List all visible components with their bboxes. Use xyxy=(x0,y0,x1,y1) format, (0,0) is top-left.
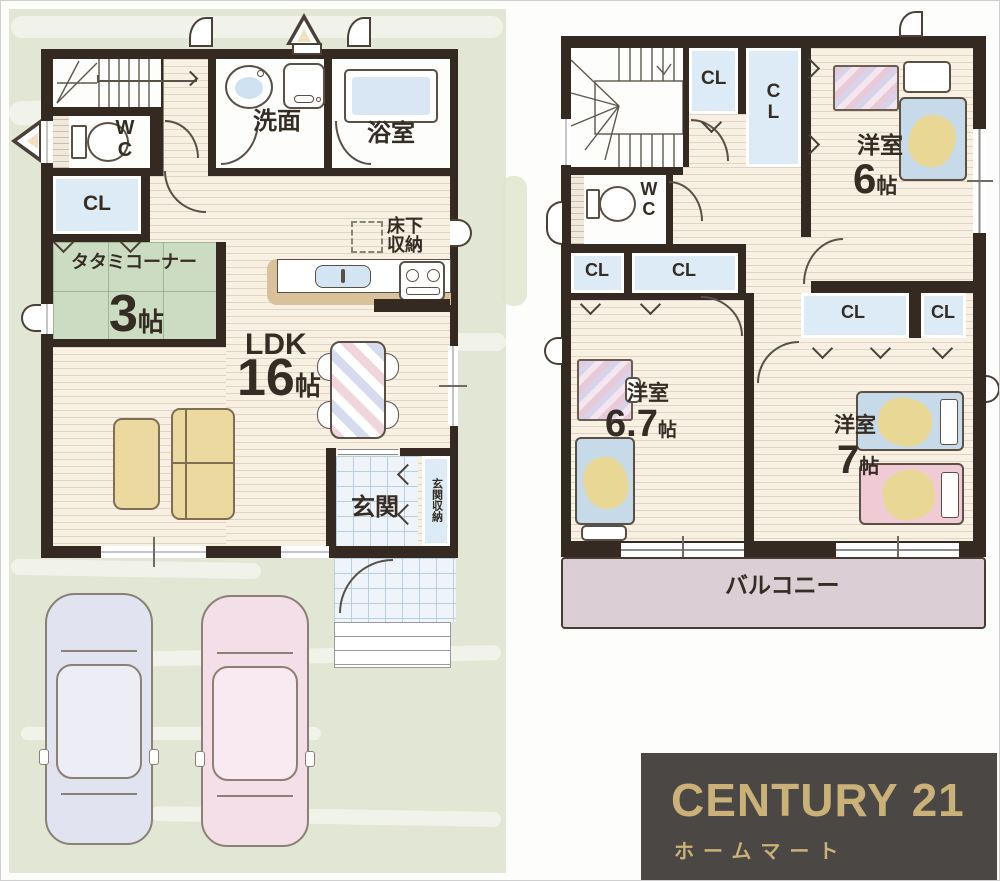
bedroom67-name-label: 洋室 xyxy=(627,383,669,405)
ldk-size-unit: 帖 xyxy=(295,371,321,401)
floorplan-page: 床下収納 xyxy=(0,0,1000,881)
stairs-treads-2f xyxy=(571,48,683,167)
bedroom7-size-number: 7 xyxy=(837,438,859,482)
wc-label-1f: WC xyxy=(114,117,135,161)
bedroom67-size-number: 6.7 xyxy=(605,403,658,445)
bath-label: 浴室 xyxy=(367,121,415,146)
bedroom7-size-unit: 帖 xyxy=(859,456,879,478)
logo-subtitle: ホームマート xyxy=(674,835,847,864)
bedroom6-size-unit: 帖 xyxy=(876,175,897,198)
wc-label-2f: WC xyxy=(639,179,658,219)
wc-cabinet-1f xyxy=(53,116,69,168)
wc-cabinet-2f xyxy=(571,175,584,244)
car-cabin xyxy=(56,664,142,778)
desk-icon xyxy=(833,65,899,111)
closet-label-2f: CL xyxy=(585,261,609,280)
closet-label-2f: CL xyxy=(701,69,726,89)
bed-icon xyxy=(899,97,967,181)
entrance-label: 玄関 xyxy=(351,495,399,520)
washroom-label: 洗面 xyxy=(253,109,301,134)
car-mirror xyxy=(39,749,49,765)
bedroom6-size-label: 6帖 xyxy=(853,157,897,201)
bedroom7-name-label: 洋室 xyxy=(834,415,876,437)
stairs-arrow-1f xyxy=(97,80,197,82)
sofa-icon xyxy=(171,408,235,520)
porch-steps xyxy=(334,622,451,668)
bedroom6-name-label: 洋室 xyxy=(857,133,903,157)
bathtub-icon xyxy=(344,69,438,123)
awning-icon xyxy=(21,304,41,332)
wall xyxy=(744,293,754,541)
wall xyxy=(738,244,746,293)
background-streak xyxy=(11,16,503,38)
wall xyxy=(571,244,744,253)
ldk-size-number: 16 xyxy=(237,349,295,407)
car-mirror xyxy=(195,751,205,767)
underfloor-storage-label: 床下収納 xyxy=(387,217,429,255)
underfloor-storage-box xyxy=(351,221,383,253)
stairs-treads-1f xyxy=(53,59,161,107)
car-cabin xyxy=(212,666,298,780)
closet-label-2f: CL xyxy=(931,303,955,322)
background-streak xyxy=(501,176,527,306)
wall xyxy=(801,167,811,237)
door-icon xyxy=(899,11,923,37)
closet-label-2f: CL xyxy=(841,303,865,322)
awning-icon xyxy=(544,337,562,365)
faucet-icon xyxy=(341,269,345,283)
stairs-arrow-hook xyxy=(97,75,99,83)
entrance-top-wall xyxy=(400,448,450,456)
awning-icon xyxy=(986,375,1000,403)
logo-century21: CENTURY 21 ホームマート xyxy=(641,753,997,881)
bedroom7-size-label: 7帖 xyxy=(837,439,879,481)
car-mirror xyxy=(149,749,159,765)
window xyxy=(41,121,53,163)
wall xyxy=(624,253,632,293)
car-icon-pink xyxy=(201,595,309,847)
bedroom67-size-unit: 帖 xyxy=(658,420,677,441)
entrance-left-wall xyxy=(326,448,336,546)
window-tick xyxy=(439,385,467,387)
tatami-name-label: タタミコーナー xyxy=(71,253,197,272)
wall xyxy=(909,293,921,338)
logo-brand: CENTURY 21 xyxy=(671,773,965,827)
balcony-label: バルコニー xyxy=(725,573,840,597)
closet-label-1f: CL xyxy=(83,193,111,215)
tatami-size-label: 3帖 xyxy=(109,287,164,342)
stove-icon xyxy=(399,261,445,301)
awning-icon xyxy=(546,201,562,245)
washing-machine-icon xyxy=(283,63,325,109)
shelf-icon xyxy=(581,525,627,541)
kitchen-wall-stub xyxy=(374,299,450,312)
wall xyxy=(571,167,683,175)
window-tick xyxy=(967,180,993,182)
window xyxy=(41,304,53,334)
entrance-storage-label: 玄関収納 xyxy=(430,478,442,522)
window xyxy=(561,119,571,165)
car-mirror xyxy=(305,751,315,767)
window-tick xyxy=(153,537,155,567)
dining-table xyxy=(330,341,386,439)
closet-label-2f: CL xyxy=(672,261,696,280)
window xyxy=(281,546,329,558)
sink-icon xyxy=(225,65,273,109)
car-icon-blue xyxy=(45,593,153,845)
tatami-size-number: 3 xyxy=(109,285,138,343)
entrance-step-line xyxy=(338,449,398,455)
armchair-icon xyxy=(113,418,160,510)
tatami-size-unit: 帖 xyxy=(138,307,164,337)
bedroom67-size-label: 6.7帖 xyxy=(605,405,677,445)
bed-icon xyxy=(575,437,635,525)
wall xyxy=(683,48,689,167)
bedroom6-size-number: 6 xyxy=(853,155,876,202)
ldk-size-label: 16帖 xyxy=(237,351,321,406)
shelf-icon xyxy=(903,61,951,93)
closet-label-2f-tall: CL xyxy=(763,81,783,123)
